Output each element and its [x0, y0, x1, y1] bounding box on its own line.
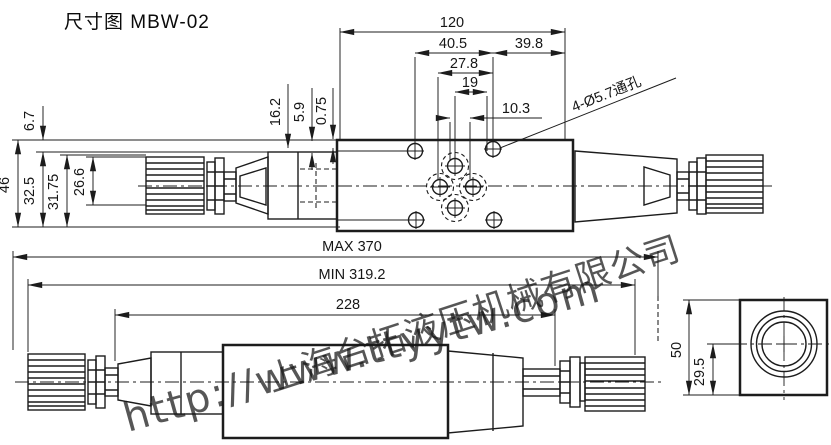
end-view-center-cross — [776, 336, 792, 352]
dimension-drawing: 尺寸图 MBW-02 — [0, 0, 831, 445]
port-hole — [427, 174, 454, 201]
dim-27-8: 27.8 — [450, 56, 478, 72]
dim-228: 228 — [336, 297, 360, 313]
dimension-drawing-page: 尺寸图 MBW-02 — [0, 0, 831, 445]
dim-120: 120 — [440, 15, 464, 31]
top-dimensions: 120 40.5 39.8 27.8 19 10.3 — [340, 15, 565, 118]
side-nut-left — [88, 356, 105, 408]
port-hole — [460, 174, 487, 201]
end-view-body — [740, 300, 827, 395]
watermark: 上海台拓液压机械有限公司 http://www.ttyytw.com — [118, 229, 685, 442]
cone-right — [575, 151, 677, 222]
mounting-hole — [485, 211, 503, 229]
side-knob-right — [585, 357, 645, 411]
side-stem-right — [523, 369, 560, 396]
dim-6-7: 6.7 — [22, 111, 38, 131]
dim-10-3: 10.3 — [502, 101, 530, 117]
hole-note-label: 4-Ø5.7通孔 — [569, 73, 644, 116]
watermark-website: http://www.ttyytw.com — [118, 265, 606, 441]
adjustment-knob-left — [146, 157, 204, 214]
dim-29-5: 29.5 — [692, 358, 708, 386]
extension-lines-top — [12, 28, 565, 227]
adjustment-knob-right — [706, 155, 763, 213]
page-title: 尺寸图 MBW-02 — [64, 11, 210, 33]
mounting-hole — [407, 211, 425, 229]
dim-26-6: 26.6 — [72, 168, 88, 196]
end-dimensions: 50 29.5 — [669, 300, 713, 395]
cone-left — [236, 157, 268, 214]
side-taper-right — [448, 351, 523, 433]
cap-block-left — [268, 152, 337, 219]
mid-dimensions: 16.2 5.9 0.75 — [268, 84, 333, 170]
lock-nut-right — [689, 158, 706, 214]
left-dimensions: 46 6.7 32.5 31.75 26.6 — [0, 106, 93, 227]
dim-46: 46 — [0, 177, 13, 193]
dim-50: 50 — [669, 342, 685, 358]
stem-left — [224, 172, 236, 201]
end-view: 50 29.5 — [669, 297, 831, 400]
dim-32-5: 32.5 — [22, 177, 38, 205]
top-view: 120 40.5 39.8 27.8 19 10.3 46 6.7 32.5 3… — [0, 15, 772, 231]
dim-16-2: 16.2 — [268, 98, 284, 126]
dim-0-75: 0.75 — [314, 97, 330, 125]
dim-19: 19 — [462, 75, 478, 91]
port-holes — [427, 153, 487, 222]
lock-nut-left — [207, 158, 224, 214]
mounting-hole — [406, 142, 424, 160]
dim-31-75: 31.75 — [46, 174, 62, 210]
dim-max-370: MAX 370 — [322, 239, 382, 255]
dim-5-9: 5.9 — [292, 102, 308, 122]
dim-min-319-2: MIN 319.2 — [319, 267, 386, 283]
dim-40-5: 40.5 — [439, 36, 467, 52]
port-hole — [442, 195, 469, 222]
dim-39-8: 39.8 — [515, 36, 543, 52]
